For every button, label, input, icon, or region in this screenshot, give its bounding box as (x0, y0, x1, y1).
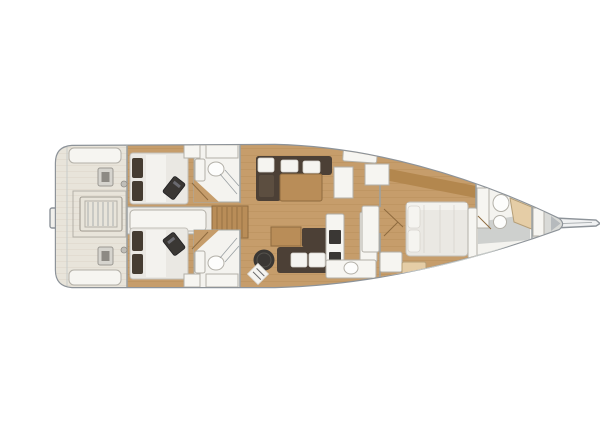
aft-cabin-starboard-pillow-2 (132, 254, 143, 274)
cockpit-sunpad-starboard (69, 270, 121, 285)
aft-cabin-starboard-duvet (146, 230, 166, 277)
aft-head-starboard-cabinet (206, 274, 238, 287)
galley-upper-cabinet (334, 167, 353, 198)
salon-cushion-corner (258, 158, 274, 172)
owner-bed-pillow-2 (408, 230, 420, 252)
helm-wheel-starboard (102, 251, 110, 261)
forward-head-locker (477, 188, 489, 228)
salon-cushion-2 (281, 160, 298, 172)
aft-cabin-port-cabinet (184, 145, 200, 158)
cockpit-sunpad-port (69, 148, 121, 163)
aft-head-port-vanity (195, 159, 205, 181)
settee-cushion-2 (309, 253, 325, 267)
owner-bed-foot-bench (468, 208, 477, 258)
sail-locker-step (533, 208, 544, 236)
floorplan-canvas (40, 16, 600, 416)
aft-cabin-port-duvet (146, 155, 166, 202)
aft-cabin-port-pillow-1 (132, 158, 143, 178)
aft-head-port-toilet (208, 162, 224, 176)
galley-sink (344, 262, 358, 274)
salon-table (280, 174, 322, 201)
salon-sofa-seat (259, 175, 274, 197)
helm-wheel-port (102, 172, 110, 182)
settee-back (302, 228, 329, 247)
aft-cabin-starboard-cabinet (184, 274, 200, 287)
aft-cabin-starboard-pillow-1 (132, 231, 143, 251)
aft-head-starboard-toilet (208, 256, 224, 270)
aft-head-starboard-vanity (195, 251, 205, 273)
forward-head-sink (494, 216, 507, 229)
deck-hatch-top (343, 150, 378, 163)
aft-head-port-cabinet (206, 145, 238, 158)
settee-cushion-1 (291, 253, 307, 267)
forward-head-toilet (493, 195, 509, 212)
aft-cabin-port-pillow-2 (132, 181, 143, 201)
owner-cabin-wardrobe (362, 206, 379, 252)
owner-cabin-cabinet (380, 252, 402, 272)
winch-starboard (121, 247, 127, 253)
nav-desk (271, 227, 301, 246)
winch-port (121, 181, 127, 187)
yacht-floorplan (40, 16, 600, 416)
owner-bed-pillow-1 (408, 206, 420, 228)
galley-stove (329, 230, 341, 244)
salon-cushion-3 (303, 161, 320, 173)
midship-wardrobe-top (365, 164, 389, 185)
cockpit-table (80, 197, 122, 231)
